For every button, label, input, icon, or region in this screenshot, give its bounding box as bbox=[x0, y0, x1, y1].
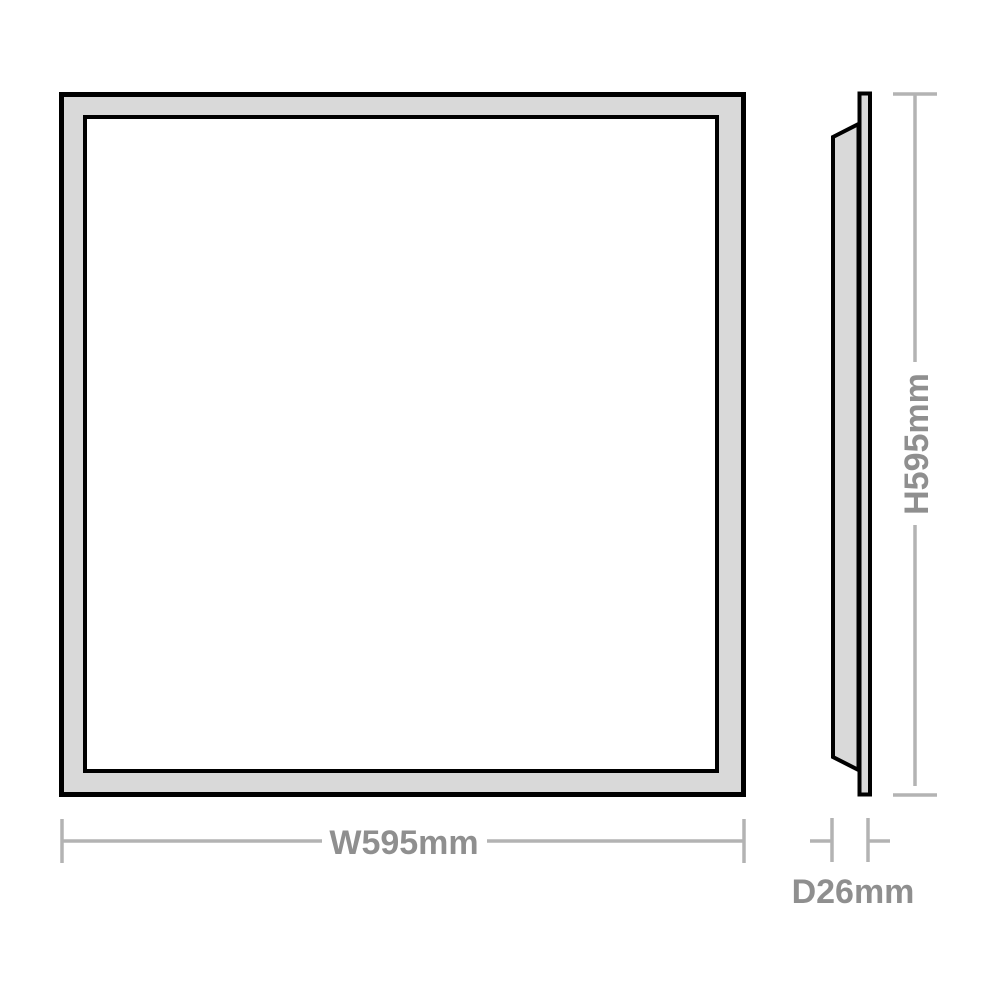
panel-dimension-diagram: W595mm H595mm D26mm bbox=[0, 0, 1000, 1000]
front-view bbox=[62, 95, 744, 795]
width-dimension: W595mm bbox=[62, 819, 744, 863]
width-dimension-label: W595mm bbox=[329, 824, 478, 862]
depth-dimension-label: D26mm bbox=[792, 873, 915, 911]
depth-dimension: D26mm bbox=[792, 818, 915, 911]
height-dimension: H595mm bbox=[893, 94, 937, 795]
front-view-diffuser bbox=[85, 117, 717, 771]
diagram-canvas: W595mm H595mm D26mm bbox=[0, 0, 1000, 1000]
side-view-frame-edge bbox=[860, 94, 871, 795]
side-view-back-box bbox=[833, 124, 859, 770]
height-dimension-label: H595mm bbox=[898, 373, 936, 515]
side-view bbox=[833, 94, 870, 795]
